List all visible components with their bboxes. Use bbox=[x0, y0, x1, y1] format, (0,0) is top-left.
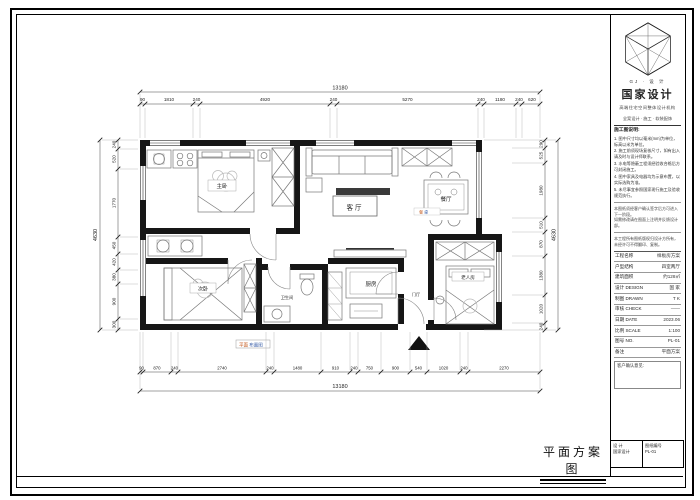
logo-caption: GJ · 设 计 bbox=[614, 79, 681, 86]
svg-text:540: 540 bbox=[415, 366, 423, 371]
svg-text:1020: 1020 bbox=[539, 303, 544, 314]
svg-text:1810: 1810 bbox=[164, 97, 175, 102]
bottom-band-line bbox=[17, 476, 683, 477]
remark: 如需修改请在图面上注明并反馈设计部。 bbox=[614, 217, 681, 229]
svg-text:620: 620 bbox=[528, 97, 536, 102]
wardrobe-second bbox=[244, 264, 256, 312]
svg-text:420: 420 bbox=[112, 258, 117, 266]
svg-text:餐 桌: 餐 桌 bbox=[419, 209, 428, 215]
table-row: 图号 NO.PL-01 bbox=[614, 337, 681, 348]
floor-plan-drawing: 客厅 餐厅 主卧 次卧 老人房 厨房 卫生间 门厅 平面 布置图 餐 桌 bbox=[0, 0, 700, 500]
svg-text:520: 520 bbox=[112, 155, 117, 163]
dim-top-total: 13180 bbox=[332, 86, 347, 92]
sink-counter bbox=[147, 150, 171, 168]
brand-tagline: 高端住宅空间整体设计机构 bbox=[614, 105, 681, 111]
dim-left-total: 4630 bbox=[93, 229, 99, 241]
kitchen-counter bbox=[328, 272, 342, 320]
room-label-elder: 老人房 bbox=[461, 274, 475, 281]
footer-cell: 图纸编号 PL-01 bbox=[643, 441, 684, 467]
divider bbox=[614, 125, 681, 126]
footer-cell: 设 计 国家设计 bbox=[611, 441, 643, 467]
svg-text:240: 240 bbox=[193, 97, 201, 102]
bath-vanity bbox=[264, 306, 290, 322]
svg-text:900: 900 bbox=[392, 366, 400, 371]
table-row: 户型结构四室两厅 bbox=[614, 262, 681, 273]
svg-text:1180: 1180 bbox=[495, 97, 505, 102]
svg-text:910: 910 bbox=[332, 366, 340, 371]
svg-text:870: 870 bbox=[539, 240, 544, 248]
svg-text:1480: 1480 bbox=[293, 366, 303, 371]
brand-name: 国家设计 bbox=[614, 88, 681, 104]
dining-stamp-part2: 桌 bbox=[424, 209, 428, 215]
dim-right-total: 4630 bbox=[552, 229, 558, 241]
entry-arrow bbox=[408, 336, 430, 350]
svg-text:1770: 1770 bbox=[112, 197, 117, 208]
svg-text:240: 240 bbox=[330, 97, 338, 102]
svg-text:380: 380 bbox=[112, 273, 117, 281]
notes-title: 施工图说明: bbox=[614, 128, 681, 135]
table-row: 建筑面积约128㎡ bbox=[614, 273, 681, 284]
coffee-table bbox=[336, 188, 390, 195]
note-item: 1. 图中尺寸均以毫米(mm)为单位，标高以米为单位。 bbox=[614, 136, 681, 148]
wardrobe-master bbox=[272, 148, 294, 206]
svg-text:750: 750 bbox=[366, 366, 374, 371]
room-labels: 客厅 餐厅 主卧 次卧 老人房 厨房 卫生间 门厅 bbox=[190, 180, 484, 301]
room-label-living: 客厅 bbox=[347, 203, 364, 212]
room-label-second: 次卧 bbox=[198, 286, 208, 293]
svg-text:240: 240 bbox=[515, 97, 523, 102]
dim-bottom-total: 13180 bbox=[332, 384, 347, 390]
vanity-counter bbox=[148, 236, 202, 256]
remark: 本图纸须经客户确认签字后方可进入下一阶段。 bbox=[614, 206, 681, 218]
room-label-bath: 卫生间 bbox=[281, 294, 294, 301]
table-row: 制图 DRAWNT K bbox=[614, 294, 681, 305]
table-row: 审核 CHECK—— bbox=[614, 305, 681, 316]
drawing-title-block: 平面方案图 bbox=[540, 443, 606, 484]
title-block: GJ · 设 计 国家设计 高端住宅空间整体设计机构 全案设计 · 施工 · 软… bbox=[610, 15, 684, 476]
drawing-title-underline bbox=[540, 483, 606, 484]
wall-layer bbox=[140, 140, 502, 330]
toilet bbox=[300, 274, 314, 295]
sofa bbox=[306, 148, 398, 192]
plan-stamp-part2: 布置图 bbox=[249, 341, 263, 348]
client-confirm-box: 客户确认意见: bbox=[614, 361, 681, 389]
company-logo-cube-icon bbox=[620, 21, 676, 77]
note-item: 4. 图中家具及电器均为示意布置，以实际选购为准。 bbox=[614, 174, 681, 186]
note-item: 3. 水电等隐蔽工程须经验收合格后方可封闭施工。 bbox=[614, 161, 681, 173]
copyright-note: 本工程所有图纸版权归设计方所有，未经许可不得翻印、复制。 bbox=[614, 236, 681, 248]
svg-text:240: 240 bbox=[350, 366, 358, 371]
note-item: 2. 施工前须现场复核尺寸，如有出入请及时与设计师联系。 bbox=[614, 148, 681, 160]
dining-cabinet bbox=[402, 148, 452, 166]
table-row: 备注平面方案 bbox=[614, 348, 681, 359]
bed-second bbox=[164, 268, 242, 320]
svg-text:平面 布置图: 平面 布置图 bbox=[239, 341, 263, 348]
svg-text:240: 240 bbox=[171, 366, 179, 371]
svg-text:1980: 1980 bbox=[539, 185, 544, 196]
svg-text:90: 90 bbox=[140, 97, 146, 102]
svg-text:90: 90 bbox=[139, 366, 144, 371]
svg-text:2270: 2270 bbox=[499, 366, 509, 371]
svg-text:1020: 1020 bbox=[439, 366, 449, 371]
svg-text:900: 900 bbox=[112, 297, 117, 305]
svg-text:240: 240 bbox=[477, 97, 485, 102]
stove bbox=[173, 150, 197, 168]
table-row: 日期 DATE2023.06 bbox=[614, 316, 681, 327]
svg-text:450: 450 bbox=[112, 241, 117, 249]
divider bbox=[614, 232, 681, 233]
title-block-footer: 设 计 国家设计 图纸编号 PL-01 bbox=[610, 440, 684, 468]
brand-contact: 全案设计 · 施工 · 软装配饰 bbox=[614, 116, 681, 122]
room-label-master: 主卧 bbox=[216, 182, 228, 190]
room-label-entry: 门厅 bbox=[412, 291, 420, 298]
svg-text:2740: 2740 bbox=[217, 366, 227, 371]
wardrobe-elder bbox=[436, 242, 494, 260]
room-label-dining: 餐厅 bbox=[440, 195, 452, 203]
svg-text:240: 240 bbox=[112, 140, 117, 148]
dining-stamp-part1: 餐 bbox=[419, 209, 423, 215]
svg-text:240: 240 bbox=[460, 366, 468, 371]
svg-text:525: 525 bbox=[539, 151, 544, 159]
svg-text:240: 240 bbox=[266, 366, 274, 371]
svg-text:300: 300 bbox=[112, 320, 117, 328]
table-row: 工程名称样板房方案 bbox=[614, 252, 681, 263]
table-row: 设计 DESIGN国 家 bbox=[614, 284, 681, 295]
kitchen-appliance bbox=[350, 304, 382, 318]
svg-text:1380: 1380 bbox=[539, 270, 544, 281]
svg-text:290: 290 bbox=[539, 140, 544, 148]
nightstand bbox=[258, 150, 270, 161]
room-label-kitchen: 厨房 bbox=[365, 280, 377, 288]
svg-text:5270: 5270 bbox=[402, 97, 413, 102]
drawing-sheet: 客厅 餐厅 主卧 次卧 老人房 厨房 卫生间 门厅 平面 布置图 餐 桌 bbox=[0, 0, 700, 500]
note-item: 5. 未尽事宜参照国家现行施工及验收规范执行。 bbox=[614, 187, 681, 199]
svg-text:870: 870 bbox=[153, 366, 161, 371]
svg-text:240: 240 bbox=[539, 322, 544, 330]
tv-cabinet bbox=[334, 249, 406, 257]
svg-text:510: 510 bbox=[539, 221, 544, 229]
svg-text:4920: 4920 bbox=[260, 97, 271, 102]
table-row: 比例 SCALE1:100 bbox=[614, 326, 681, 337]
project-info-table: 工程名称样板房方案 户型结构四室两厅 建筑面积约128㎡ 设计 DESIGN国 … bbox=[614, 251, 681, 359]
divider bbox=[614, 202, 681, 203]
